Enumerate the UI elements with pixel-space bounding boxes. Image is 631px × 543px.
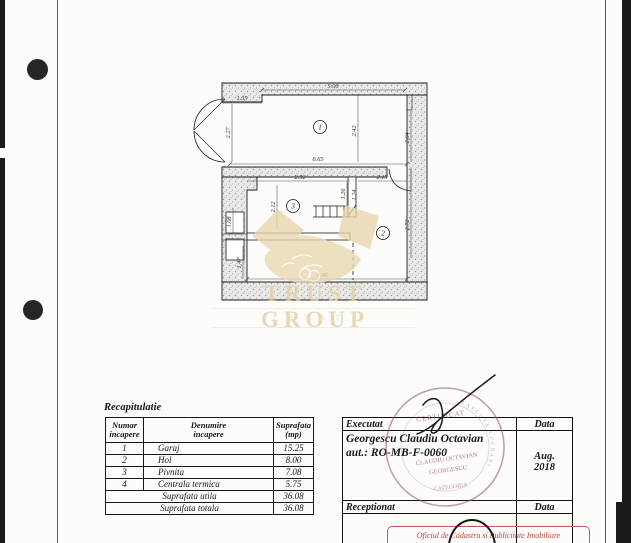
room-name: Centrala termica [144,479,274,491]
room-area: 5.75 [274,479,314,491]
total-utila-label: Suprafata utila [106,491,274,503]
wall-niche-lower [226,239,244,260]
recap-col-suprafata: Suprafata (mp) [274,418,314,443]
recap-col-denumire: Denumire incapere [144,418,274,443]
recap-title: Recapitulatie [104,402,161,413]
dim-left: 2.27 [225,127,232,139]
stamp-line-firstname: CLAUDIU OCTAVIAN [415,452,478,468]
room-area: 15.25 [274,443,314,455]
stamp-line-surname: GEORGESCU [429,464,468,476]
total-totala-row: Suprafata totala 36.08 [106,503,314,515]
stamp-line-category: CATEGORIA [433,482,468,493]
dim-room1-right: 2.64 [404,132,411,143]
room-label-1: 1 [314,121,327,134]
room-name: Hol [144,455,274,467]
dim-room2-door: 2.15 [376,174,387,181]
dim-room1-mid: 2.42 [351,125,358,137]
page-frame-left [57,0,58,543]
svg-text:1: 1 [318,123,322,132]
hole-punch-bottom [23,300,43,320]
handwritten-signature [405,370,505,440]
total-utila-value: 36.08 [274,491,314,503]
hole-punch-top [27,59,48,80]
recap-col-numar: Numar incapere [106,418,144,443]
recap-header-row: Numar incapere Denumire incapere Suprafa… [106,418,314,443]
garage-door-chord-bottom [194,131,225,162]
scan-edge-right [622,0,631,543]
scan-edge-right-corner [616,502,631,543]
date-year: 2018 [517,462,572,473]
watermark-title: TRUST GROUP [210,281,420,333]
room-number: 2 [106,455,144,467]
watermark-subtitle: ESTATE [250,313,390,322]
total-totala-value: 36.08 [274,503,314,515]
dim-top-left: 1.35 [236,95,247,102]
watermark-rule-top [213,308,415,309]
room-area: 8.00 [274,455,314,467]
total-totala-label: Suprafata totala [106,503,274,515]
dim-room3-width: 2.92 [294,174,306,181]
table-row: 1 Garaj 15.25 [106,443,314,455]
garage-door-chord-top [194,99,225,130]
date-cell: Aug. 2018 [517,431,572,500]
page-frame-right [605,0,606,543]
wall-right [407,95,427,300]
room-number: 4 [106,479,144,491]
data-label-2: Data [517,501,572,513]
scanned-document-page: 1.35 5.00 2.27 2.42 2.64 6.65 2.92 2.15 … [0,0,631,543]
dim-top: 5.00 [327,83,339,90]
watermark-rule-bottom [213,327,415,328]
table-row: 3 Pivnita 7.08 [106,467,314,479]
data-label-1: Data [517,418,572,430]
room-name: Pivnita [144,467,274,479]
room-area: 7.08 [274,467,314,479]
room-number: 1 [106,443,144,455]
table-row: 4 Centrala termica 5.75 [106,479,314,491]
total-utila-row: Suprafata utila 36.08 [106,491,314,503]
dim-niche-b: 1.47 [236,257,243,269]
watermark-handshake-logo [248,198,386,288]
wall-top [222,83,427,102]
date-month: Aug. [517,451,572,462]
scan-edge-left-bottom [0,158,5,543]
room-name: Garaj [144,443,274,455]
room-number: 3 [106,467,144,479]
recap-table: Numar incapere Denumire incapere Suprafa… [105,417,314,515]
dim-room2-right: 2.72 [404,219,411,231]
table-row: 2 Hol 8.00 [106,455,314,467]
dim-niche-a: 1.08 [226,216,233,228]
dim-room1-width: 6.65 [312,156,323,163]
scan-edge-left-top [0,0,5,148]
